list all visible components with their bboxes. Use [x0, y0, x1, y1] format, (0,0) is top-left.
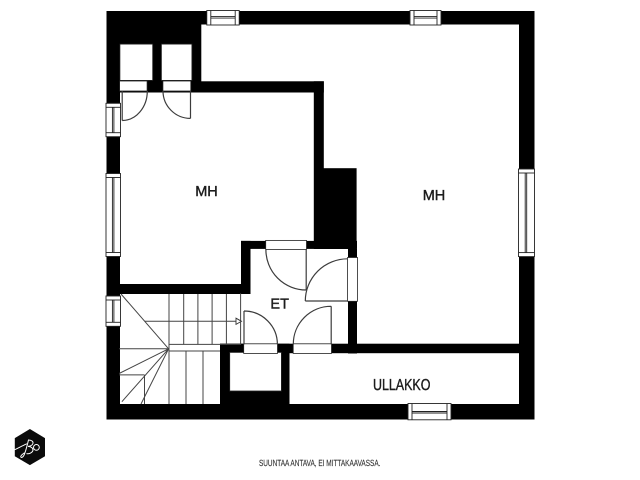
svg-text:MH: MH — [195, 184, 218, 200]
svg-text:ET: ET — [270, 296, 289, 312]
svg-text:ULLAKKO: ULLAKKO — [373, 377, 431, 394]
svg-text:MH: MH — [423, 188, 446, 204]
svg-text:SUUNTAA ANTAVA, EI MITTAKAAVAS: SUUNTAA ANTAVA, EI MITTAKAAVASSA. — [259, 458, 381, 468]
